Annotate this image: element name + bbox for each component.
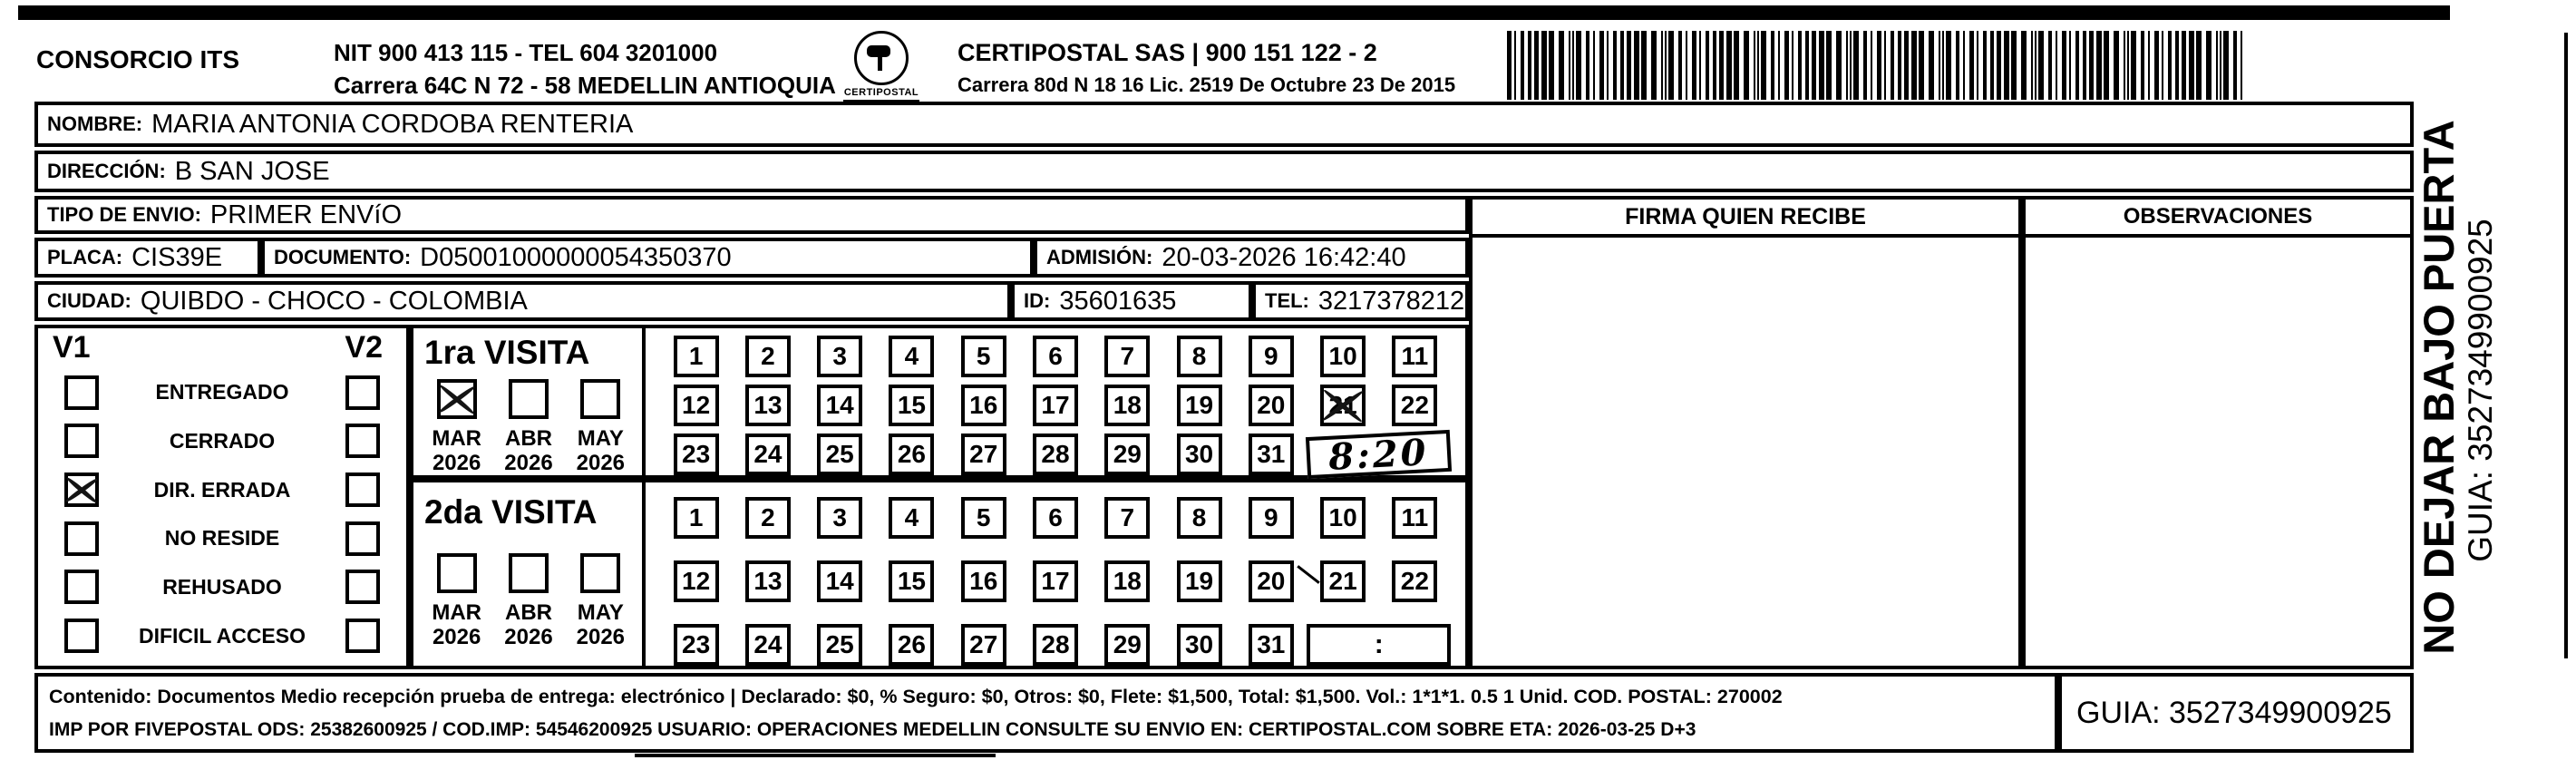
field-nombre: NOMBRE: MARIA ANTONIA CORDOBA RENTERIA [34, 102, 2414, 147]
day-cell: 8 [1177, 336, 1222, 377]
day-cell: 15 [889, 560, 934, 602]
month-label: ABR [505, 426, 552, 451]
day-cell: 7 [1104, 497, 1150, 539]
tel-label: TEL: [1265, 289, 1309, 313]
day-cell: 10 [1320, 336, 1366, 377]
month-year: 2026 [577, 625, 625, 649]
v1-header: V1 [53, 330, 91, 365]
day-cell: 30 [1177, 624, 1222, 666]
day-cell: 23 [674, 434, 719, 475]
checkbox-v1 [64, 619, 99, 653]
sender-address-line: Carrera 64C N 72 - 58 MEDELLIN ANTIOQUIA [334, 69, 836, 102]
checkbox-v2 [345, 375, 380, 410]
status-label: DIFICIL ACCESO [139, 624, 306, 648]
firma-header: FIRMA QUIEN RECIBE [1473, 200, 2018, 238]
certipostal-logo: CERTIPOSTAL [831, 31, 932, 102]
month-option: ABR2026 [504, 379, 552, 475]
day-cell: 4 [889, 497, 934, 539]
day-cell: 23 [674, 624, 719, 666]
status-rows: ENTREGADOCERRADODIR. ERRADANO RESIDEREHU… [40, 368, 404, 660]
status-panel: V1 V2 ENTREGADOCERRADODIR. ERRADANO RESI… [34, 325, 410, 669]
day-cell: 11 [1392, 336, 1437, 377]
day-cell: 15 [889, 385, 934, 426]
month-option: MAR2026 [432, 379, 481, 475]
day-cell: 16 [961, 385, 1006, 426]
day-cell: 1 [674, 336, 719, 377]
month-option: MAY2026 [577, 379, 625, 475]
month-label: MAY [578, 426, 624, 451]
stamp-glyph [867, 45, 890, 57]
checkbox-v2 [345, 473, 380, 507]
status-row: REHUSADO [40, 563, 404, 612]
day-cell: 20 [1249, 560, 1294, 602]
day-cell: 27 [961, 624, 1006, 666]
documento-value: D05001000000054350370 [420, 243, 732, 273]
month-year: 2026 [577, 451, 625, 475]
checkbox-v2 [345, 619, 380, 653]
day-cell: 12 [674, 560, 719, 602]
day-cell: 3 [817, 497, 862, 539]
first-visit-section: 1ra VISITA MAR2026ABR2026MAY2026 1234567… [410, 325, 1469, 479]
sender-contact-block: NIT 900 413 115 - TEL 604 3201000 Carrer… [334, 36, 836, 102]
day-cell: 13 [745, 560, 791, 602]
x-mark [1317, 382, 1368, 429]
day-cell: 24 [745, 434, 791, 475]
status-label: REHUSADO [162, 575, 282, 599]
firma-section: FIRMA QUIEN RECIBE [1469, 196, 2022, 669]
day-cell: 31 [1249, 624, 1294, 666]
field-ciudad: CIUDAD: QUIBDO - CHOCO - COLOMBIA [34, 281, 1011, 321]
day-cell: 29 [1104, 434, 1150, 475]
month-checkbox [509, 379, 549, 419]
day-cell: 3 [817, 336, 862, 377]
day-cell: 6 [1033, 336, 1078, 377]
x-mark [62, 470, 102, 510]
day-cell: 30 [1177, 434, 1222, 475]
month-option: MAR2026 [432, 553, 481, 649]
status-row: DIFICIL ACCESO [40, 611, 404, 660]
day-cell: 19 [1177, 385, 1222, 426]
day-cell: 25 [817, 624, 862, 666]
day-cell: 26 [889, 434, 934, 475]
postal-delivery-slip: CONSORCIO ITS NIT 900 413 115 - TEL 604 … [0, 0, 2576, 760]
checkbox-v1 [64, 570, 99, 604]
day-cell: 21 [1320, 560, 1366, 602]
day-cell: 6 [1033, 497, 1078, 539]
month-year: 2026 [504, 625, 552, 649]
day-cell: 14 [817, 560, 862, 602]
placa-label: PLACA: [47, 246, 122, 269]
day-cell: 22 [1392, 560, 1437, 602]
field-direccion: DIRECCIÓN: B SAN JOSE [34, 151, 2414, 192]
placa-value: CIS39E [131, 243, 222, 273]
day-cell: 29 [1104, 624, 1150, 666]
field-tipo-envio: TIPO DE ENVIO: PRIMER ENVíO [34, 196, 1469, 234]
day-cell: 27 [961, 434, 1006, 475]
day-cell: 9 [1249, 497, 1294, 539]
id-label: ID: [1024, 289, 1050, 313]
day-cell: 19 [1177, 560, 1222, 602]
day-cell: 13 [745, 385, 791, 426]
admision-label: ADMISIÓN: [1046, 246, 1152, 269]
tipo-envio-value: PRIMER ENVíO [210, 200, 402, 230]
scan-edge-line [2564, 33, 2568, 658]
ciudad-label: CIUDAD: [47, 289, 131, 313]
day-cell: 14 [817, 385, 862, 426]
day-cell: 5 [961, 497, 1006, 539]
checkbox-v1 [64, 375, 99, 410]
checkbox-v2 [345, 570, 380, 604]
tel-value: 3217378212 [1318, 287, 1464, 317]
day-cell: 17 [1033, 385, 1078, 426]
field-placa: PLACA: CIS39E [34, 238, 261, 278]
day-cell: 12 [674, 385, 719, 426]
day-cell: 24 [745, 624, 791, 666]
admision-value: 20-03-2026 16:42:40 [1162, 243, 1405, 273]
carrier-address: Carrera 80d N 18 16 Lic. 2519 De Octubre… [957, 69, 1455, 102]
status-label: ENTREGADO [156, 380, 289, 404]
month-label: MAR [432, 600, 481, 625]
id-value: 35601635 [1059, 287, 1176, 317]
month-option: ABR2026 [504, 553, 552, 649]
month-checkbox [509, 553, 549, 593]
day-cell: 5 [961, 336, 1006, 377]
day-cell: 10 [1320, 497, 1366, 539]
checkbox-v1 [64, 473, 99, 507]
observaciones-section: OBSERVACIONES [2022, 196, 2414, 669]
day-cell: 22 [1392, 385, 1437, 426]
day-cell: 2 [745, 497, 791, 539]
day-cell: 28 [1033, 434, 1078, 475]
nombre-value: MARIA ANTONIA CORDOBA RENTERIA [151, 110, 633, 140]
field-tel: TEL: 3217378212 [1252, 281, 1469, 321]
status-label: NO RESIDE [165, 526, 280, 551]
sender-nit-line: NIT 900 413 115 - TEL 604 3201000 [334, 36, 836, 69]
side-guia-number: GUIA: 3527349900925 [2461, 112, 2501, 669]
second-visit-title: 2da VISITA [424, 493, 598, 531]
stamp-glyph-stem [878, 57, 882, 71]
field-admision: ADMISIÓN: 20-03-2026 16:42:40 [1034, 238, 1469, 278]
day-cell: 20 [1249, 385, 1294, 426]
day-cell: 11 [1392, 497, 1437, 539]
direccion-value: B SAN JOSE [175, 157, 330, 187]
guia-number: GUIA: 3527349900925 [2076, 696, 2392, 731]
checkbox-v1 [64, 521, 99, 556]
top-scan-bar [18, 5, 2450, 20]
imp-line: IMP POR FIVEPOSTAL ODS: 25382600925 / CO… [49, 719, 2055, 741]
nombre-label: NOMBRE: [47, 112, 142, 136]
day-cell: 8 [1177, 497, 1222, 539]
field-id: ID: 35601635 [1011, 281, 1252, 321]
day-cell: 17 [1033, 560, 1078, 602]
month-label: MAY [578, 600, 624, 625]
barcode [1507, 31, 2250, 100]
logo-label: CERTIPOSTAL [831, 87, 932, 98]
month-checkbox [580, 553, 620, 593]
day-cell: 4 [889, 336, 934, 377]
time-cell: 8:20 [1306, 430, 1452, 479]
month-checkbox [437, 553, 477, 593]
second-visit-months: MAR2026ABR2026MAY2026 [421, 553, 637, 649]
checkbox-v2 [345, 424, 380, 458]
documento-label: DOCUMENTO: [274, 246, 411, 269]
field-documento: DOCUMENTO: D05001000000054350370 [261, 238, 1034, 278]
status-row: DIR. ERRADA [40, 465, 404, 514]
day-cell: 18 [1104, 560, 1150, 602]
checkbox-v2 [345, 521, 380, 556]
carrier-info-block: CERTIPOSTAL SAS | 900 151 122 - 2 Carrer… [957, 36, 1455, 102]
day-cell: 9 [1249, 336, 1294, 377]
month-label: MAR [432, 426, 481, 451]
month-year: 2026 [504, 451, 552, 475]
status-label: DIR. ERRADA [154, 478, 291, 502]
scan-bottom-line [635, 754, 996, 757]
time-cell: : [1307, 624, 1451, 666]
first-visit-months: MAR2026ABR2026MAY2026 [421, 379, 637, 475]
month-checkbox [580, 379, 620, 419]
day-cell: 16 [961, 560, 1006, 602]
sender-company: CONSORCIO ITS [36, 45, 239, 74]
month-year: 2026 [433, 625, 481, 649]
day-cell: 21 [1320, 385, 1366, 426]
checkbox-v1 [64, 424, 99, 458]
first-visit-title: 1ra VISITA [424, 334, 589, 372]
second-visit-day-grid: 1234567891011121314151617181920212223242… [646, 482, 1465, 666]
day-cell: 1 [674, 497, 719, 539]
postal-stamp-icon [854, 31, 909, 85]
side-warning-text: NO DEJAR BAJO PUERTA [2416, 102, 2463, 673]
direccion-label: DIRECCIÓN: [47, 160, 166, 183]
first-visit-day-grid: 1234567891011121314151617181920212223242… [646, 328, 1465, 475]
day-cell: 31 [1249, 434, 1294, 475]
day-cell: 28 [1033, 624, 1078, 666]
ciudad-value: QUIBDO - CHOCO - COLOMBIA [141, 287, 528, 317]
carrier-name: CERTIPOSTAL SAS | 900 151 122 - 2 [957, 36, 1455, 69]
v2-header: V2 [345, 330, 383, 365]
status-row: NO RESIDE [40, 514, 404, 563]
status-row: CERRADO [40, 417, 404, 466]
shipment-details-section: Contenido: Documentos Medio recepción pr… [34, 673, 2058, 753]
status-label: CERRADO [170, 429, 275, 453]
day-cell: 26 [889, 624, 934, 666]
day-cell: 2 [745, 336, 791, 377]
x-mark [434, 376, 480, 422]
contenido-line: Contenido: Documentos Medio recepción pr… [49, 686, 2055, 708]
month-option: MAY2026 [577, 553, 625, 649]
observaciones-header: OBSERVACIONES [2026, 200, 2410, 238]
guia-box: GUIA: 3527349900925 [2058, 673, 2414, 753]
month-checkbox [437, 379, 477, 419]
status-row: ENTREGADO [40, 368, 404, 417]
day-cell: 18 [1104, 385, 1150, 426]
month-year: 2026 [433, 451, 481, 475]
day-cell: 7 [1104, 336, 1150, 377]
tipo-envio-label: TIPO DE ENVIO: [47, 203, 201, 227]
day-cell: 25 [817, 434, 862, 475]
month-label: ABR [505, 600, 552, 625]
